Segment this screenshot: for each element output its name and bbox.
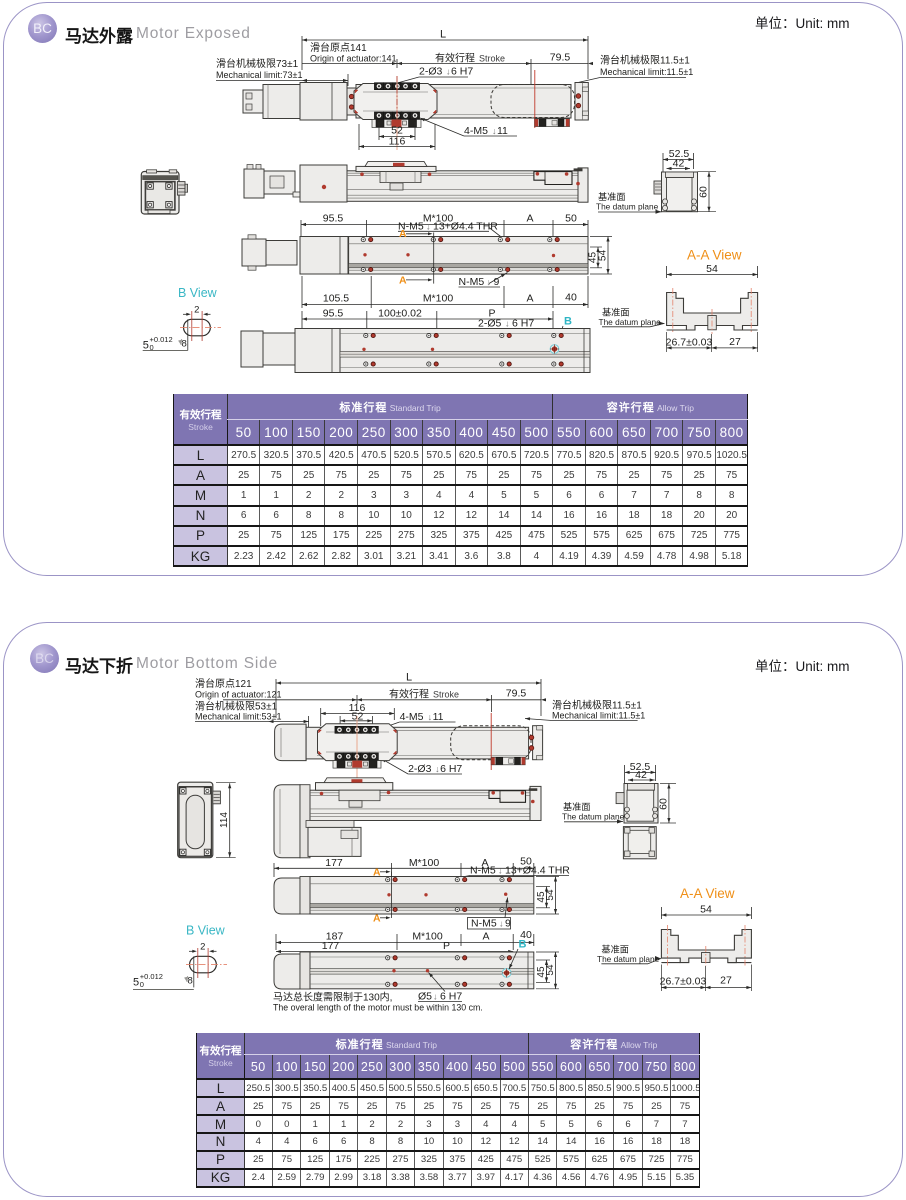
svg-text:A: A [526, 293, 533, 305]
svg-text:基准面: 基准面 [563, 801, 591, 812]
svg-text:A: A [482, 931, 489, 943]
svg-text:50: 50 [565, 213, 577, 225]
svg-text:Mechanical limit:73±1: Mechanical limit:73±1 [216, 70, 302, 80]
svg-text:Stroke: Stroke [433, 690, 459, 700]
svg-text:The overal length of the motor: The overal length of the motor must be w… [273, 1003, 483, 1013]
svg-text:26.7±0.03: 26.7±0.03 [660, 976, 707, 988]
svg-text:2: 2 [194, 305, 199, 316]
svg-text:5: 5 [133, 977, 139, 989]
svg-text:M*100: M*100 [423, 293, 454, 305]
svg-text:60: 60 [657, 798, 669, 810]
svg-text:114: 114 [219, 812, 230, 828]
svg-text:177: 177 [322, 940, 340, 952]
svg-text:0: 0 [140, 980, 144, 989]
svg-text:79.5: 79.5 [506, 688, 527, 700]
svg-text:↓: ↓ [433, 992, 438, 1002]
svg-text:↓: ↓ [492, 126, 497, 136]
svg-text:↓: ↓ [446, 67, 451, 77]
svg-text:8: 8 [188, 976, 193, 987]
svg-text:105.5: 105.5 [323, 293, 349, 305]
svg-text:滑台原点121: 滑台原点121 [195, 677, 252, 690]
svg-text:A-A View: A-A View [687, 248, 742, 263]
svg-text:↓: ↓ [428, 712, 433, 722]
svg-text:6 H7: 6 H7 [512, 318, 534, 330]
svg-text:B: B [519, 939, 527, 951]
svg-text:8: 8 [182, 339, 187, 350]
svg-text:B View: B View [186, 924, 226, 938]
svg-text:2-Ø3: 2-Ø3 [408, 763, 432, 775]
svg-text:79.5: 79.5 [550, 52, 571, 64]
svg-text:B: B [564, 316, 572, 328]
svg-text:27: 27 [720, 975, 732, 987]
svg-text:Mechanical limit:53±1: Mechanical limit:53±1 [195, 712, 281, 722]
svg-text:27: 27 [729, 336, 741, 348]
svg-text:Stroke: Stroke [479, 54, 505, 64]
svg-text:95.5: 95.5 [323, 213, 344, 225]
svg-text:9: 9 [505, 918, 511, 930]
svg-text:↓: ↓ [498, 866, 503, 876]
svg-text:L: L [440, 29, 446, 41]
svg-text:基准面: 基准面 [602, 307, 630, 318]
svg-text:11: 11 [497, 125, 508, 137]
svg-text:A: A [399, 228, 407, 240]
svg-text:↓: ↓ [435, 764, 440, 774]
svg-text:M*100: M*100 [409, 857, 440, 869]
svg-text:Mechanical limit:11.5±1: Mechanical limit:11.5±1 [600, 67, 693, 77]
svg-text:Origin of actuator:121: Origin of actuator:121 [195, 690, 282, 700]
svg-text:↓: ↓ [426, 222, 431, 232]
svg-text:滑台机械极限11.5±1: 滑台机械极限11.5±1 [600, 54, 690, 67]
svg-text:↓: ↓ [487, 277, 492, 287]
svg-text:40: 40 [565, 292, 577, 304]
svg-text:A: A [373, 913, 381, 925]
svg-text:Ø5: Ø5 [418, 991, 432, 1003]
svg-text:M*100: M*100 [412, 931, 443, 943]
svg-text:The datum plane: The datum plane [562, 812, 625, 822]
svg-text:54: 54 [545, 964, 556, 976]
svg-text:N-M5: N-M5 [459, 276, 485, 288]
svg-text:A: A [373, 867, 381, 879]
svg-text:11: 11 [433, 711, 444, 723]
svg-text:Mechanical limit:11.5±1: Mechanical limit:11.5±1 [552, 711, 645, 721]
svg-text:基准面: 基准面 [598, 191, 626, 202]
svg-text:A: A [526, 213, 533, 225]
svg-text:54: 54 [545, 889, 556, 901]
svg-text:54: 54 [700, 904, 712, 916]
svg-text:A: A [399, 275, 407, 287]
svg-text:滑台原点141: 滑台原点141 [310, 41, 367, 54]
svg-text:2: 2 [200, 942, 205, 953]
svg-text:52: 52 [352, 711, 364, 723]
svg-text:54: 54 [598, 250, 609, 262]
svg-text:54: 54 [706, 263, 718, 275]
svg-text:L: L [406, 672, 412, 684]
svg-text:6 H7: 6 H7 [440, 991, 462, 1003]
svg-text:13+Ø4.4 THR: 13+Ø4.4 THR [505, 865, 570, 877]
svg-text:A-A View: A-A View [680, 886, 735, 901]
svg-text:↓: ↓ [505, 319, 510, 329]
svg-text:有效行程: 有效行程 [389, 688, 429, 701]
svg-text:26.7±0.03: 26.7±0.03 [666, 337, 713, 349]
svg-text:95.5: 95.5 [323, 308, 344, 320]
svg-text:116: 116 [389, 136, 406, 148]
svg-text:B View: B View [178, 286, 218, 300]
svg-text:2-Ø3: 2-Ø3 [419, 66, 443, 78]
svg-text:42: 42 [635, 769, 647, 781]
svg-text:↓: ↓ [499, 919, 504, 929]
svg-text:4-M5: 4-M5 [400, 711, 424, 723]
svg-text:4-M5: 4-M5 [464, 125, 488, 137]
svg-text:5: 5 [143, 340, 149, 352]
svg-text:100±0.02: 100±0.02 [378, 308, 422, 320]
svg-text:177: 177 [325, 857, 343, 869]
svg-text:The datum plane: The datum plane [599, 317, 662, 327]
svg-text:13+Ø4.4 THR: 13+Ø4.4 THR [433, 221, 498, 233]
svg-text:6 H7: 6 H7 [440, 763, 462, 775]
svg-text:6 H7: 6 H7 [451, 66, 473, 78]
svg-text:N-M5: N-M5 [471, 918, 497, 930]
svg-text:基准面: 基准面 [601, 944, 629, 955]
svg-text:The datum plane: The datum plane [596, 202, 659, 212]
svg-text:Origin of actuator:141: Origin of actuator:141 [310, 54, 397, 64]
svg-text:有效行程: 有效行程 [435, 52, 475, 65]
svg-text:42: 42 [673, 158, 685, 170]
svg-text:60: 60 [698, 186, 710, 198]
svg-text:P: P [443, 940, 450, 952]
svg-text:2-Ø5: 2-Ø5 [478, 318, 502, 330]
svg-text:N-M5: N-M5 [470, 865, 496, 877]
svg-text:滑台机械极限73±1: 滑台机械极限73±1 [216, 57, 299, 70]
